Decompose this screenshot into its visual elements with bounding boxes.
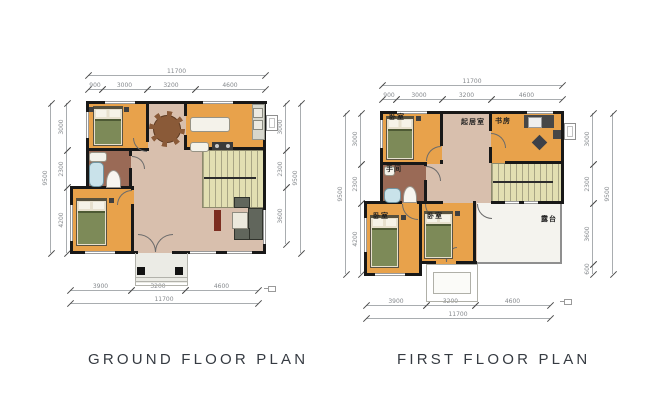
porch-roof-inner (433, 272, 471, 294)
dim-label: 9500 (605, 186, 611, 201)
window (380, 120, 383, 148)
wall (489, 147, 492, 163)
stairs (491, 163, 562, 203)
floor-plan-sheet: 11700 900 3000 3200 4600 9500 3000 2300 … (0, 0, 650, 401)
dim-label: 3900 (366, 299, 426, 305)
first-floor-plan: 11700 900 3000 3200 4600 9500 3000 2300 … (0, 0, 650, 401)
wall (440, 111, 443, 146)
dim-top-segment: 3000 (396, 99, 442, 100)
dim-bottom-segment: 4600 (475, 305, 550, 306)
dim-right-segment: 3600 (592, 203, 593, 264)
dim-left-segment: 2300 (360, 164, 361, 203)
window (364, 218, 367, 252)
dim-left-segment: 3000 (360, 113, 361, 164)
window (524, 201, 538, 204)
wall (424, 180, 427, 204)
nightstand (455, 211, 460, 216)
room-label-bedroom-top: 卧室 (389, 114, 405, 121)
room-label-living: 起居室 (461, 119, 485, 126)
dim-label: 600 (585, 263, 591, 274)
dim-bottom-segment: 3900 (366, 305, 426, 306)
dim-label: 11700 (366, 312, 550, 318)
dim-right-segment: 600 (592, 264, 593, 274)
dim-label: 3000 (353, 131, 359, 146)
dim-right-total: 9500 (612, 113, 613, 274)
nightstand (416, 116, 421, 121)
dim-label: 2300 (353, 176, 359, 191)
dim-label: 4600 (491, 93, 562, 99)
dim-label: 4600 (475, 299, 550, 305)
window (527, 111, 553, 114)
dim-label: 900 (382, 93, 396, 99)
elevation-marker (564, 299, 572, 305)
cabinet (553, 130, 561, 139)
dim-left-total: 9500 (345, 113, 346, 274)
wall (419, 201, 422, 276)
dim-label: 9500 (338, 186, 344, 201)
dim-label: 11700 (382, 79, 562, 85)
dim-right-segment: 2300 (592, 164, 593, 203)
room-label-bedroom-mid: 卧室 (427, 213, 443, 220)
dim-top-total: 11700 (382, 85, 562, 86)
wall (505, 161, 564, 164)
toilet (403, 186, 417, 203)
wall (473, 201, 476, 264)
dim-top-segment: 3200 (442, 99, 491, 100)
dim-top-segment: 4600 (491, 99, 562, 100)
bathtub (384, 188, 401, 203)
bay-window (564, 123, 576, 140)
dim-label: 3000 (585, 131, 591, 146)
room-label-study: 书房 (495, 118, 511, 125)
ground-floor-title: GROUND FLOOR PLAN (88, 352, 308, 367)
window (505, 201, 519, 204)
dim-label: 4200 (353, 231, 359, 246)
bed (386, 116, 414, 160)
dim-label: 3600 (585, 226, 591, 241)
window (375, 273, 405, 276)
room-label-bath: 手间 (386, 166, 402, 173)
room-label-bedroom-left: 卧室 (373, 213, 389, 220)
stair-rail (493, 181, 553, 183)
dim-label: 3000 (396, 93, 442, 99)
dim-bottom-segment: 3200 (426, 305, 475, 306)
terrace-railing (477, 262, 562, 264)
wall (489, 111, 492, 131)
desk-monitor (528, 117, 542, 128)
dim-right-segment: 3000 (592, 113, 593, 164)
dim-label: 2300 (585, 176, 591, 191)
first-floor-title: FIRST FLOOR PLAN (397, 352, 590, 367)
room-label-terrace: 露台 (541, 216, 557, 223)
bed (370, 215, 399, 268)
dim-label: 3200 (442, 93, 491, 99)
terrace-railing (560, 204, 562, 264)
dim-bottom-total: 11700 (366, 318, 550, 319)
nightstand (401, 215, 406, 220)
dim-left-segment: 4200 (360, 203, 361, 274)
